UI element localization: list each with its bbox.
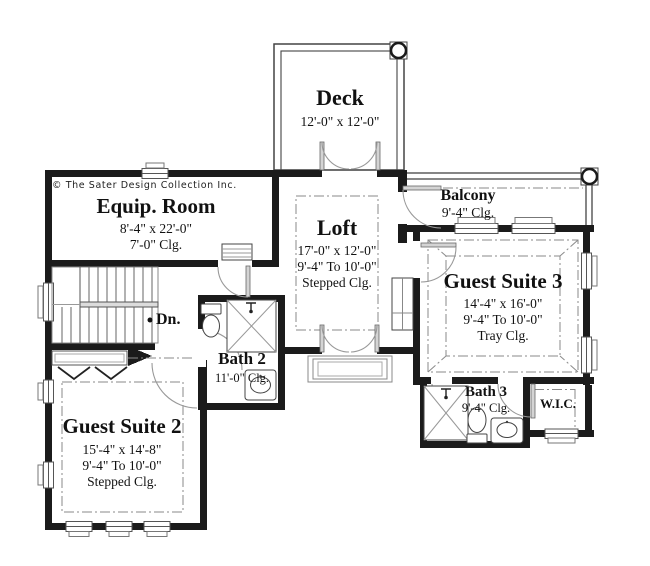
balcony-label: Balcony 9'-4" Clg. [440,187,495,221]
stair-direction-dot [148,318,153,323]
room-dims: 17'-0" x 12'-0" [297,243,376,259]
equip-room-label: Equip. Room 8'-4" x 22'-0" 7'-0" Clg. [96,195,215,253]
room-name: W.I.C. [540,396,576,411]
balcony-door-swing [403,190,441,228]
floor-plan: © The Sater Design Collection Inc. Deck … [0,0,650,566]
room-name: Guest Suite 2 [62,415,181,438]
bath-3-label: Bath 3 9'-4" Clg. [462,384,510,416]
balcony-post-icon [582,169,597,184]
stairs [52,267,158,343]
deck-label: Deck 12'-0" x 12'-0" [301,86,380,130]
room-name: Deck [301,86,380,110]
deck-door-swing [351,142,377,169]
toilet-icon [201,304,221,337]
deck-post-icon [391,43,406,58]
equip-door-swing [218,267,248,297]
room-ceiling: Tray Clg. [443,328,562,344]
copyright-text: © The Sater Design Collection Inc. [52,180,237,191]
room-name: Balcony [440,187,495,205]
room-ceiling: 7'-0" Clg. [96,237,215,253]
wic-label: W.I.C. [540,396,576,411]
room-dims: 15'-4" x 14'-8" [62,442,181,458]
shower-icon [227,300,276,352]
room-dims: 12'-0" x 12'-0" [301,114,380,130]
room-name: Loft [297,216,376,240]
equip-door-leaf [246,266,250,297]
room-dims: 8'-4" x 22'-0" [96,221,215,237]
room-ceiling: 11'-0" Clg. [215,371,269,386]
room-ceiling: 9'-4" Clg. [440,205,495,221]
room-name: Bath 2 [215,349,269,368]
room-name: Guest Suite 3 [443,270,562,293]
room-ceiling-range: 9'-4" To 10'-0" [297,259,376,275]
equip-vent [222,244,252,260]
sink-icon [491,418,523,443]
room-ceiling-range: 9'-4" To 10'-0" [443,312,562,328]
guest-suite-2-door-swing [152,363,197,408]
linen-shelves [392,278,413,330]
room-ceiling: 9'-4" Clg. [462,401,510,416]
loft-niche [308,356,392,382]
stairs-down-label: Dn. [156,311,180,329]
loft-door-swing [351,325,377,352]
room-ceiling-range: 9'-4" To 10'-0" [62,458,181,474]
railing-posts [390,42,598,185]
room-dims: 14'-4" x 16'-0" [443,296,562,312]
stair-shelf [52,351,127,379]
rail-chevron-icon [95,367,127,379]
guest-suite-3-door-leaf [421,243,456,247]
bath-2-label: Bath 2 11'-0" Clg. [215,349,269,386]
guest-suite-2-label: Guest Suite 2 15'-4" x 14'-8" 9'-4" To 1… [62,415,181,490]
room-name: Bath 3 [462,384,510,401]
balcony-railing [404,173,592,230]
guest-suite-3-label: Guest Suite 3 14'-4" x 16'-0" 9'-4" To 1… [443,270,562,344]
deck-door-swing [322,142,349,169]
room-name: Equip. Room [96,195,215,218]
balcony-door-leaf [403,186,441,190]
room-ceiling: Stepped Clg. [62,474,181,490]
room-ceiling: Stepped Clg. [297,275,376,291]
wic-door-leaf [531,384,535,418]
rail-chevron-icon [58,367,90,379]
loft-door-swing [322,325,349,352]
loft-label: Loft 17'-0" x 12'-0" 9'-4" To 10'-0" Ste… [297,216,376,291]
